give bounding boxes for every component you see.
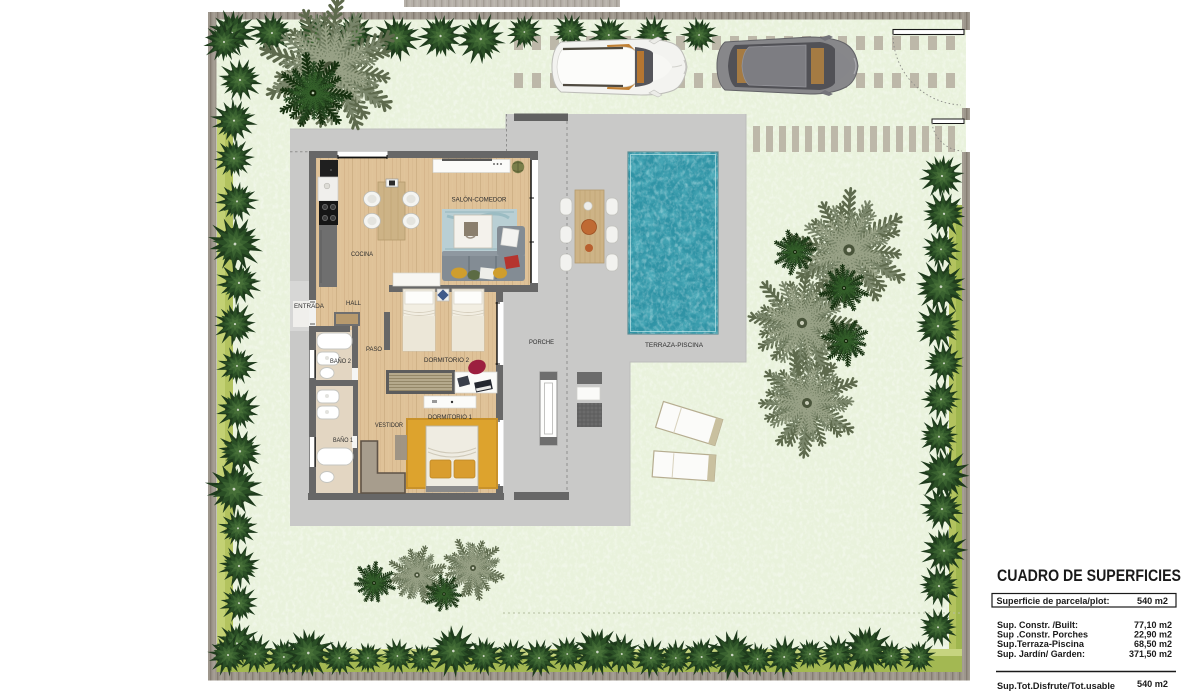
svg-text:COCINA: COCINA [351,251,374,258]
svg-text:ENTRADA: ENTRADA [294,303,325,310]
svg-text:Sup.Tot.Disfrute/Tot.usable: Sup.Tot.Disfrute/Tot.usable [997,681,1115,692]
svg-text:540 m2: 540 m2 [1137,679,1168,690]
svg-text:TERRAZA-PISCINA: TERRAZA-PISCINA [645,342,704,349]
svg-text:HALL: HALL [346,300,361,307]
svg-text:CUADRO DE SUPERFICIES: CUADRO DE SUPERFICIES [997,566,1181,585]
svg-text:PASO: PASO [366,346,382,353]
svg-text:VESTIDOR: VESTIDOR [375,422,403,429]
svg-text:Sup. Jardín/ Garden:: Sup. Jardín/ Garden: [997,649,1085,660]
svg-text:BAÑO 2: BAÑO 2 [330,356,351,365]
svg-text:DORMITORIO 1: DORMITORIO 1 [428,414,472,421]
svg-text:SALÓN-COMEDOR: SALÓN-COMEDOR [452,195,507,204]
svg-text:540 m2: 540 m2 [1137,596,1168,607]
svg-text:BAÑO 1: BAÑO 1 [333,435,353,444]
svg-text:DORMITORIO 2: DORMITORIO 2 [424,357,469,364]
svg-text:Superficie de parcela/plot:: Superficie de parcela/plot: [997,596,1110,607]
svg-text:371,50 m2: 371,50 m2 [1129,649,1172,660]
svg-text:PORCHE: PORCHE [529,339,554,346]
